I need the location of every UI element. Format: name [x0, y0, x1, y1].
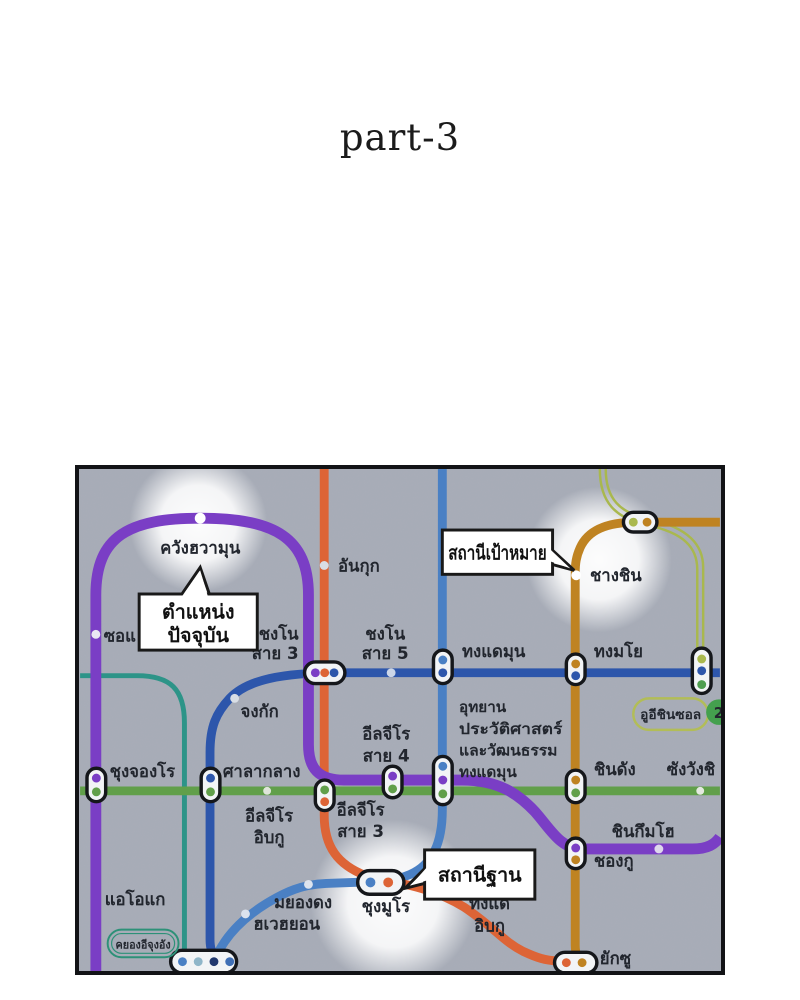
label-ddm-park-line3: และวัฒนธรรม: [459, 741, 557, 759]
callout-base-station-label: สถานีฐาน: [438, 863, 522, 888]
capsule-changsin-junction: [623, 512, 656, 532]
label-gwanghwamun: ควังฮวามุน: [160, 538, 241, 559]
label-myeongdong: มยองดง: [274, 892, 332, 912]
line2-number-label: 2: [714, 705, 721, 722]
capsule-cityhall: [201, 768, 220, 801]
label-chungjeongno: ชุงจองโร: [110, 761, 175, 782]
dot-myeongdong: [304, 880, 313, 889]
dot-jongno5: [387, 668, 396, 677]
capsule-yaksu: [555, 952, 597, 971]
dot-gwanghwamun: [195, 513, 206, 524]
label-aeogae: แอโอแก: [105, 889, 166, 909]
label-singeumho: ชินกึมโฮ: [612, 821, 675, 841]
label-euljiro3-line2: สาย 3: [337, 821, 384, 841]
label-jonggak: จงกัก: [241, 701, 279, 721]
label-yaksu: ยักซู: [600, 948, 631, 970]
dot-hoehyeon: [241, 909, 250, 918]
callout-current-position-line1: ตำแหน่ง: [162, 601, 235, 624]
comic-page: part-3: [0, 0, 800, 1000]
dot-anguk: [320, 561, 329, 570]
ui-sinseol-badge-label: อูอีชินซอล: [640, 708, 701, 723]
label-ddm-park-line4: ทงแดมุน: [459, 763, 517, 782]
capsule-chungmuro: [358, 871, 404, 895]
subway-map: อูอีชินซอล 2 คยองอีจุงอัง ควังฮวามุน ซอแ…: [79, 469, 721, 971]
label-chungmuro: ชุงมูโร: [362, 896, 411, 918]
callout-base-station: สถานีฐาน: [405, 850, 535, 899]
label-euljiro3-line1: อีลจีโร: [337, 799, 385, 819]
label-cheonggu: ชองกู: [594, 851, 634, 873]
dot-sangwangsimni: [696, 787, 704, 795]
capsule-chungjeongno: [87, 768, 106, 801]
label-cityhall: ศาลากลาง: [223, 761, 301, 781]
callout-destination-label: สถานีเป้าหมาย: [448, 542, 546, 565]
label-euljiro4-line1: อีลจีโร: [362, 724, 410, 744]
label-jongno5-line1: ชงโน: [365, 623, 405, 643]
label-dongdaemun: ทงแดมุน: [462, 641, 526, 662]
subway-map-panel: อูอีชินซอล 2 คยองอีจุงอัง ควังฮวามุน ซอแ…: [75, 465, 725, 975]
label-sangwangsimni: ซังวังชิ: [667, 759, 715, 779]
label-jongno3-line1: ชงโน: [259, 623, 299, 643]
label-sindang: ชินดัง: [594, 759, 636, 779]
label-dongmyo: ทงมโย: [594, 641, 643, 661]
dot-changsin: [571, 570, 581, 580]
label-seodaemun: ซอแ: [104, 625, 136, 645]
label-jongno5-line2: สาย 5: [362, 643, 409, 663]
label-ddm-park-line1: อุทยาน: [459, 698, 507, 717]
dot-singeumho: [654, 845, 663, 854]
label-changsin: ชางชิน: [590, 565, 642, 585]
gyeongui-badge-label: คยองอีจุงอัง: [116, 938, 171, 952]
label-jongno3-line2: สาย 3: [252, 643, 299, 663]
label-dongguk-line2: อิบกู: [474, 916, 505, 938]
dot-jonggak: [230, 694, 239, 703]
capsule-sindang: [566, 770, 585, 802]
label-anguk: อันกุก: [338, 555, 380, 576]
capsule-dongdaemun: [433, 650, 452, 683]
label-hoehyeon: ฮเวฮยอน: [253, 914, 320, 934]
page-title: part-3: [0, 116, 800, 159]
dot-euljiro1: [263, 787, 271, 795]
label-euljiro1-line2: อิบกู: [254, 827, 285, 849]
label-euljiro4-line2: สาย 4: [363, 745, 410, 765]
label-ddm-park-line2: ประวัติศาสตร์: [459, 720, 563, 738]
callout-current-position-line2: ปัจจุบัน: [167, 624, 229, 648]
label-euljiro1-line1: อีลจีโร: [245, 805, 293, 825]
dot-seodaemun: [91, 630, 100, 639]
